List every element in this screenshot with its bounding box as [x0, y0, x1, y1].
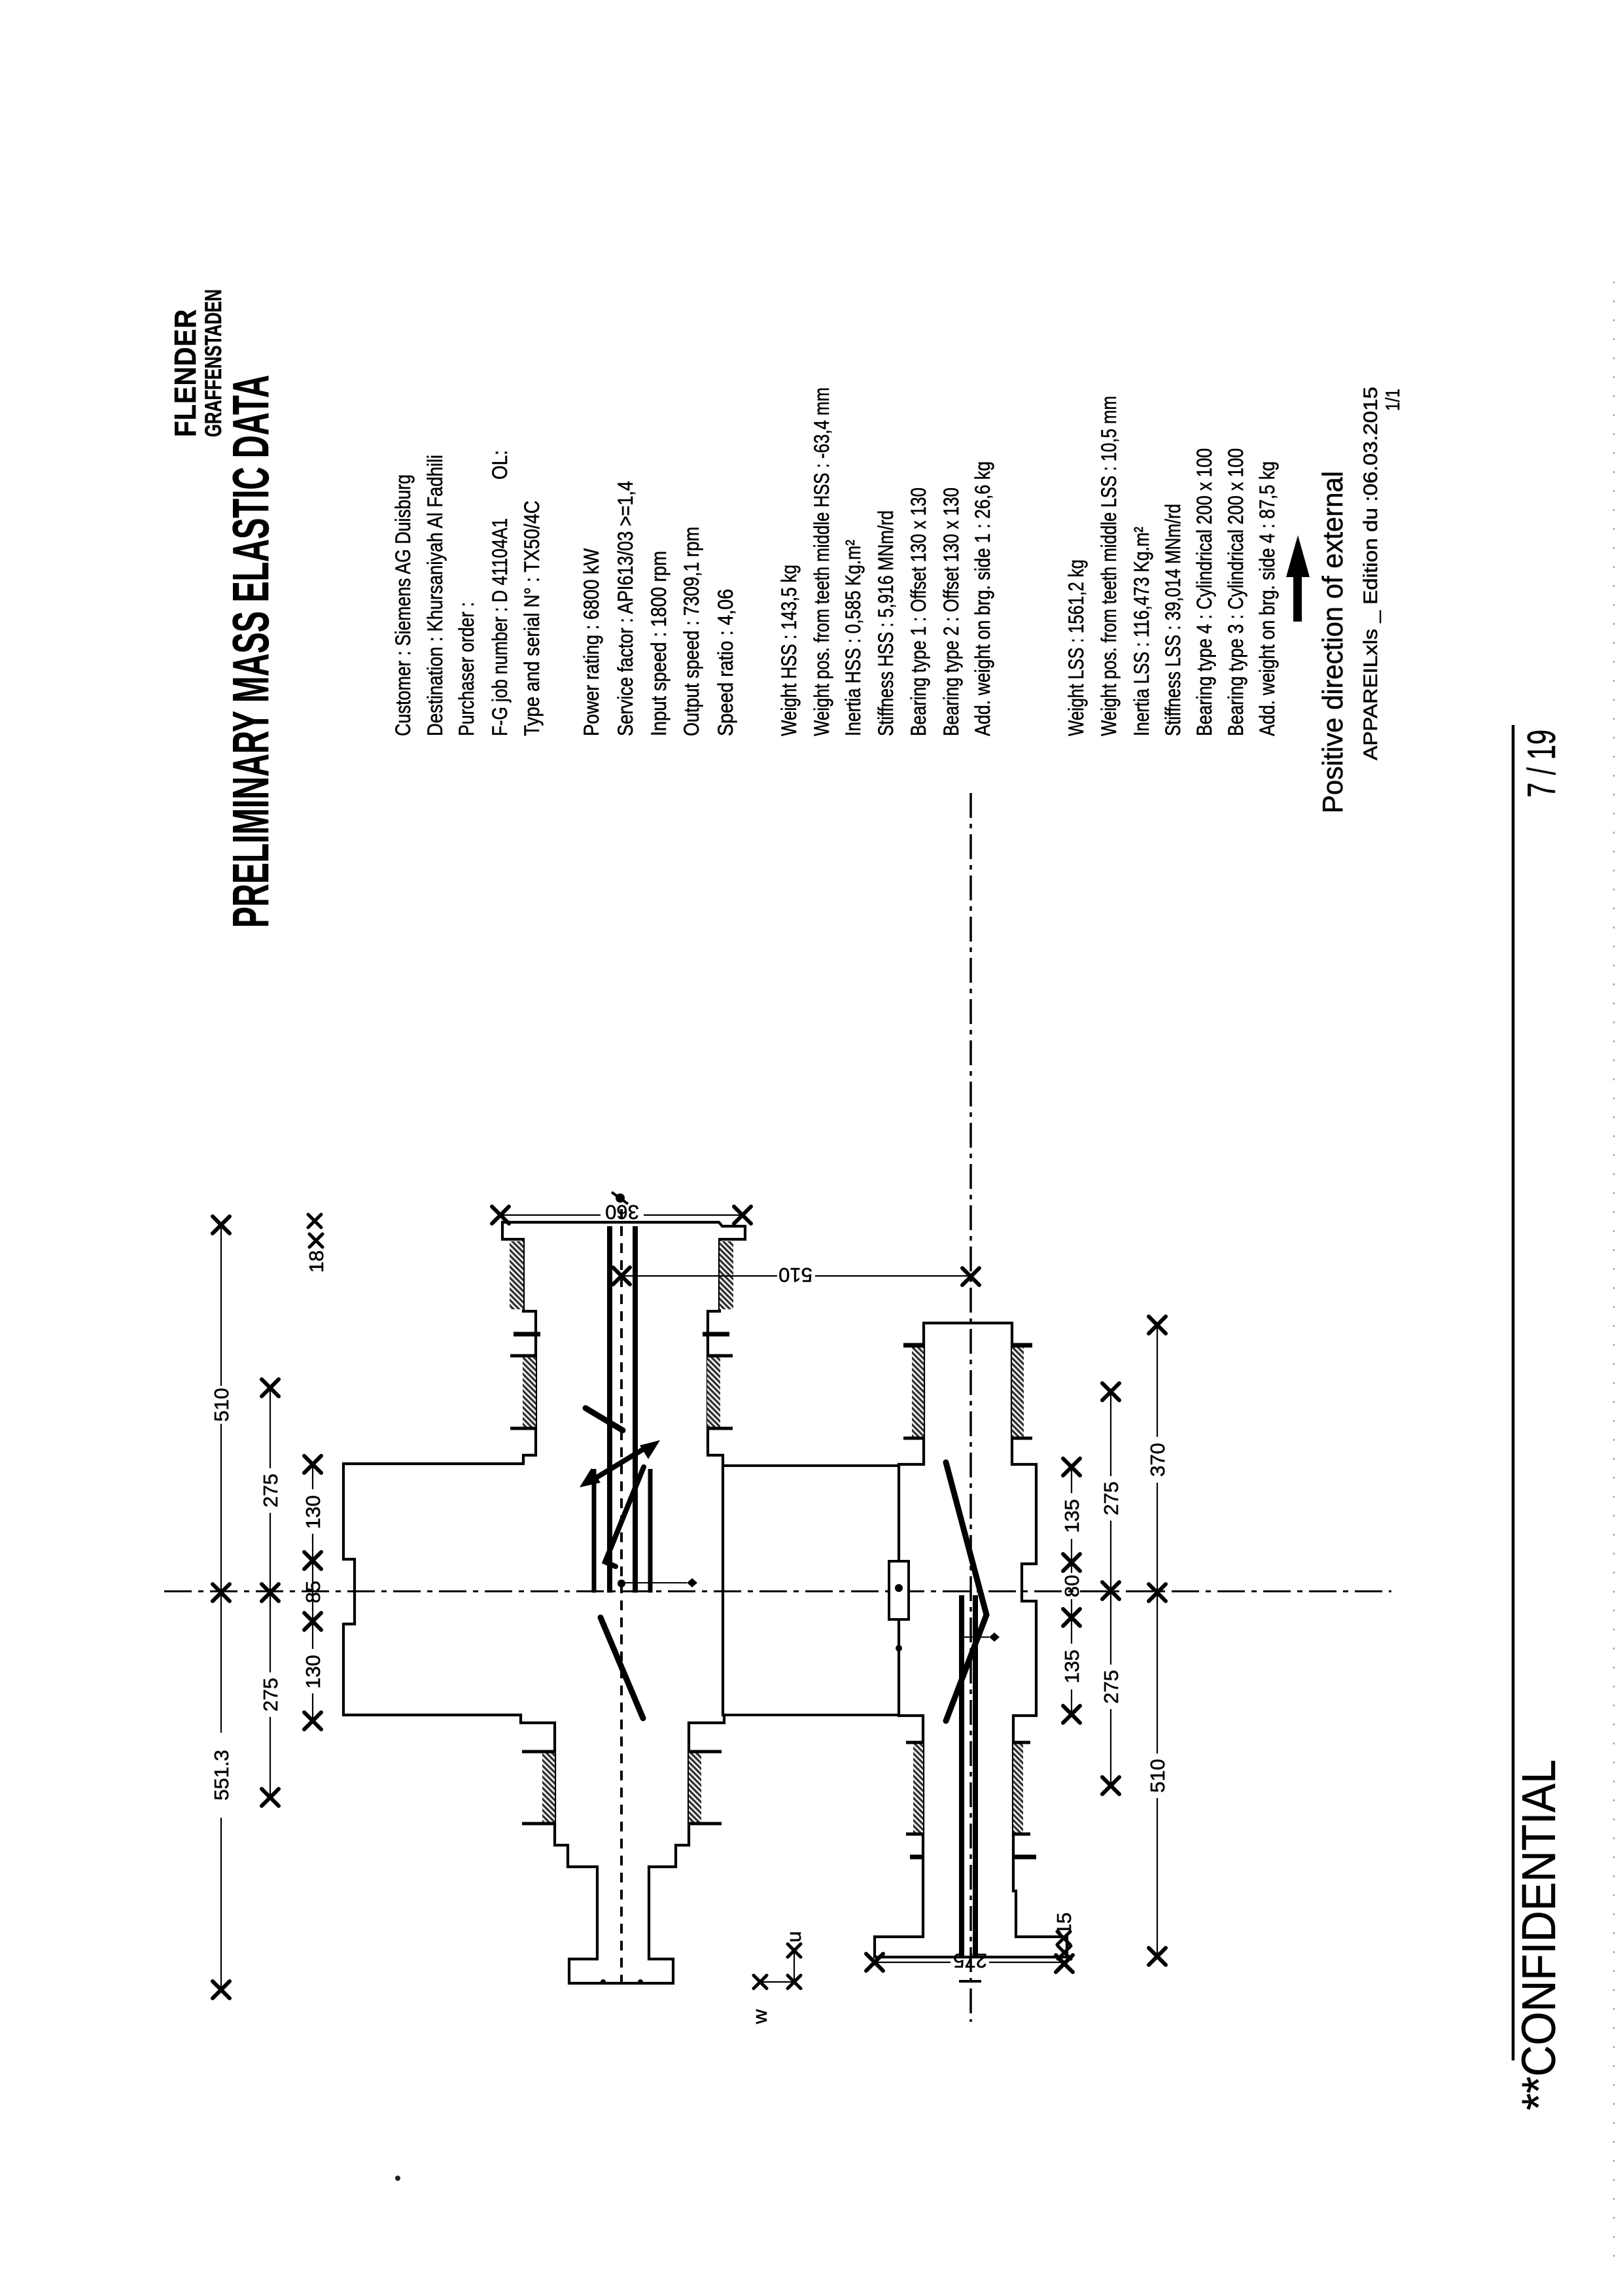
svg-text:Weight pos. from teeth middle: Weight pos. from teeth middle HSS : -63,… — [810, 387, 833, 736]
svg-text:Bearing type 2 : Offset 130 x: Bearing type 2 : Offset 130 x 130 — [939, 487, 963, 736]
svg-text:Inertia HSS : 0,585 Kg.m²: Inertia HSS : 0,585 Kg.m² — [841, 540, 865, 736]
svg-text:Power rating : 6800 kW: Power rating : 6800 kW — [580, 548, 603, 736]
svg-text:1/1: 1/1 — [1382, 389, 1404, 411]
svg-text:Type and serial N° : TX50/4C: Type and serial N° : TX50/4C — [520, 501, 544, 736]
svg-text:370: 370 — [1146, 1443, 1169, 1477]
svg-text:85: 85 — [302, 1581, 324, 1603]
svg-text:510: 510 — [778, 1263, 812, 1286]
svg-text:551.3: 551.3 — [210, 1750, 233, 1801]
svg-text:Positive direction of external: Positive direction of external — [1317, 471, 1349, 813]
svg-text:Bearing type 4 : Cylindrical 2: Bearing type 4 : Cylindrical 200 x 100 — [1193, 448, 1216, 736]
svg-text:275: 275 — [1100, 1670, 1123, 1704]
svg-text:Bearing type 3 : Cylindrical 2: Bearing type 3 : Cylindrical 200 x 100 — [1224, 448, 1248, 736]
svg-text:Weight LSS : 1561,2 kg: Weight LSS : 1561,2 kg — [1064, 559, 1088, 736]
svg-text:15: 15 — [1053, 1913, 1075, 1935]
svg-text:275: 275 — [259, 1678, 282, 1712]
svg-text:510: 510 — [210, 1388, 233, 1422]
svg-text:510: 510 — [1146, 1759, 1169, 1793]
svg-text:FLENDER: FLENDER — [168, 309, 202, 437]
svg-text:Service factor : API613/03 >=1: Service factor : API613/03 >=1,4 — [614, 481, 637, 736]
svg-text:130: 130 — [302, 1495, 324, 1529]
svg-text:Speed ratio : 4,06: Speed ratio : 4,06 — [714, 589, 737, 736]
svg-text:Purchaser order :: Purchaser order : — [455, 602, 478, 736]
svg-text:u: u — [782, 1931, 805, 1942]
svg-text:Stiffness HSS : 5,916 MNm/rd: Stiffness HSS : 5,916 MNm/rd — [874, 510, 898, 736]
svg-text:Inertia LSS : 116,473 Kg.m²: Inertia LSS : 116,473 Kg.m² — [1130, 527, 1153, 736]
svg-text:18: 18 — [305, 1250, 328, 1273]
svg-text:7 / 19: 7 / 19 — [1520, 730, 1563, 798]
svg-text:Output speed : 7309,1 rpm: Output speed : 7309,1 rpm — [680, 527, 703, 736]
svg-text:OL:: OL: — [488, 450, 512, 480]
svg-text:F-G job number : D 41104A1: F-G job number : D 41104A1 — [488, 518, 512, 736]
svg-text:Weight HSS : 143,5 kg: Weight HSS : 143,5 kg — [777, 565, 801, 736]
svg-text:135: 135 — [1060, 1499, 1083, 1533]
svg-text:Destination : Khursaniyah Al F: Destination : Khursaniyah Al Fadhili — [423, 455, 447, 736]
svg-text:Input speed : 1800 rpm: Input speed : 1800 rpm — [647, 551, 671, 736]
svg-text:Add. weight on brg. side 1 : 2: Add. weight on brg. side 1 : 26,6 kg — [971, 461, 994, 736]
svg-text:PRELIMINARY MASS ELASTIC DATA: PRELIMINARY MASS ELASTIC DATA — [222, 375, 279, 928]
svg-text:**CONFIDENTIAL: **CONFIDENTIAL — [1513, 1759, 1565, 2110]
svg-text:135: 135 — [1060, 1650, 1083, 1684]
svg-text:Stiffness LSS : 39,014 MNm/rd: Stiffness LSS : 39,014 MNm/rd — [1161, 504, 1185, 736]
svg-text:130: 130 — [302, 1655, 324, 1689]
svg-text:Add. weight on brg. side 4 : 8: Add. weight on brg. side 4 : 87,5 kg — [1255, 461, 1279, 736]
svg-text:275: 275 — [259, 1474, 282, 1508]
svg-text:275: 275 — [953, 1949, 987, 1972]
svg-text:80: 80 — [1060, 1575, 1083, 1597]
svg-text:Weight pos. from teeth middle: Weight pos. from teeth middle LSS : 10,5… — [1097, 396, 1121, 736]
svg-text:Bearing type 1 : Offset 130 x: Bearing type 1 : Offset 130 x 130 — [907, 487, 930, 736]
svg-text:Customer : Siemens AG Duisburg: Customer : Siemens AG Duisburg — [391, 474, 415, 736]
svg-text:360: 360 — [605, 1201, 639, 1224]
svg-text:275: 275 — [1100, 1481, 1123, 1515]
svg-text:APPAREILxls _ Edition du :06.0: APPAREILxls _ Edition du :06.03.2015 — [1360, 387, 1382, 760]
svg-text:w: w — [748, 2009, 771, 2024]
